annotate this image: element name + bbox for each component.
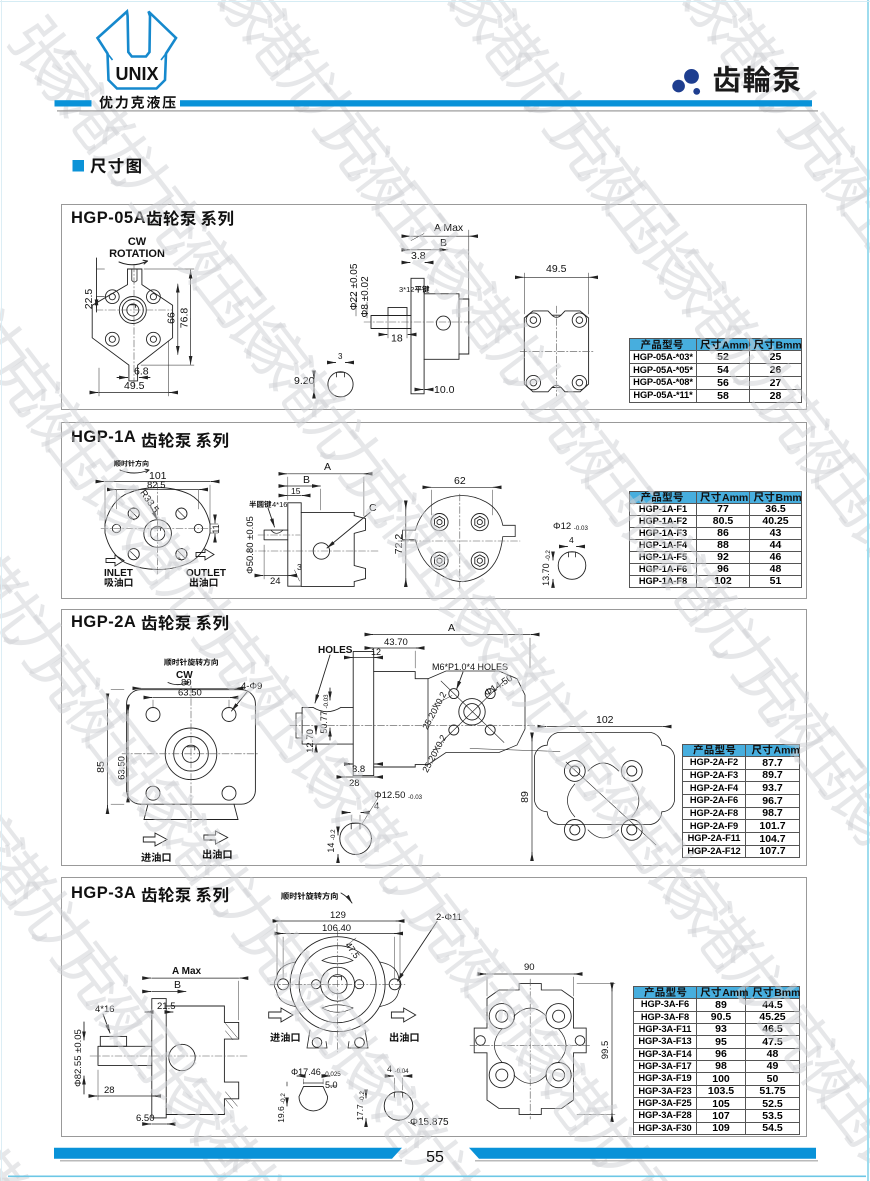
svg-text:B: B [303, 474, 310, 486]
svg-text:49.5: 49.5 [546, 263, 567, 275]
svg-text:50.77 -0.03: 50.77 -0.03 [319, 694, 330, 734]
svg-text:R33.5: R33.5 [137, 488, 161, 515]
svg-text:89: 89 [519, 791, 531, 803]
svg-text:Φ14.50: Φ14.50 [482, 673, 514, 699]
svg-text:55: 55 [426, 1149, 444, 1166]
svg-text:99.5: 99.5 [600, 1041, 611, 1060]
svg-text:17.7 -0.2: 17.7 -0.2 [355, 1091, 366, 1121]
svg-text:62: 62 [454, 475, 466, 487]
svg-text:14 -0.2: 14 -0.2 [326, 829, 337, 853]
svg-text:19.6 -0.2: 19.6 -0.2 [276, 1093, 287, 1123]
svg-text:4*16: 4*16 [95, 1004, 115, 1015]
svg-text:15: 15 [291, 486, 301, 496]
svg-text:63.50: 63.50 [117, 756, 128, 780]
svg-text:HOLES: HOLES [318, 645, 353, 656]
svg-text:Φ12 -0.03: Φ12 -0.03 [553, 521, 588, 532]
svg-text:2-Φ11: 2-Φ11 [436, 912, 462, 923]
svg-text:24: 24 [270, 576, 281, 587]
svg-text:M6*P1.0*4 HOLES: M6*P1.0*4 HOLES [432, 662, 508, 672]
svg-text:90: 90 [524, 962, 535, 973]
svg-text:5.0: 5.0 [325, 1080, 338, 1090]
svg-text:49.5: 49.5 [124, 380, 145, 392]
svg-text:76.8: 76.8 [179, 308, 191, 329]
svg-text:CW: CW [128, 236, 147, 248]
svg-text:28: 28 [349, 778, 360, 789]
svg-text:B: B [440, 237, 447, 249]
svg-text:106.40: 106.40 [322, 923, 351, 934]
svg-text:4-Φ9: 4-Φ9 [241, 681, 262, 692]
svg-text:3: 3 [338, 352, 343, 361]
svg-text:21.5: 21.5 [157, 1001, 176, 1012]
svg-text:102: 102 [596, 714, 614, 726]
svg-text:43.70: 43.70 [384, 637, 408, 648]
svg-text:13.70 -0.2: 13.70 -0.2 [541, 550, 552, 586]
svg-text:85: 85 [95, 761, 107, 773]
svg-text:22.5: 22.5 [83, 289, 95, 310]
svg-text:66: 66 [166, 312, 178, 324]
svg-text:Φ50.80 ±0.05: Φ50.80 ±0.05 [245, 516, 256, 574]
svg-text:OUTLET: OUTLET [186, 568, 226, 579]
svg-text:ROTATION: ROTATION [109, 248, 165, 260]
svg-text:63.50: 63.50 [178, 688, 202, 699]
svg-text:UNIX: UNIX [115, 64, 158, 84]
svg-text:6.8: 6.8 [134, 366, 149, 378]
svg-text:Φ22 ±0.05: Φ22 ±0.05 [349, 263, 360, 310]
svg-text:12: 12 [371, 647, 381, 657]
svg-text:3.8: 3.8 [411, 250, 426, 262]
svg-text:9.20: 9.20 [294, 375, 315, 387]
svg-text:3.8: 3.8 [352, 764, 365, 775]
svg-text:INLET: INLET [104, 568, 133, 579]
svg-text:B: B [174, 979, 181, 991]
svg-text:4: 4 [374, 801, 379, 812]
svg-text:A Max: A Max [172, 966, 202, 977]
svg-text:A Max: A Max [434, 222, 464, 234]
svg-text:Φ82.55 ±0.05: Φ82.55 ±0.05 [73, 1029, 84, 1087]
svg-text:12.70: 12.70 [305, 729, 316, 753]
svg-text:129: 129 [330, 910, 346, 921]
svg-text:4 -0.04: 4 -0.04 [387, 1064, 409, 1075]
svg-text:C: C [369, 502, 377, 514]
svg-text:25.20X0.2: 25.20X0.2 [420, 690, 448, 731]
svg-text:82.5: 82.5 [147, 480, 166, 491]
svg-text:72.2: 72.2 [393, 534, 405, 555]
svg-text:28: 28 [104, 1085, 115, 1096]
svg-text:4: 4 [569, 535, 574, 545]
svg-text:18: 18 [391, 333, 403, 345]
svg-text:A: A [448, 622, 455, 634]
svg-text:Φ17.46 -0.025: Φ17.46 -0.025 [291, 1067, 341, 1078]
svg-text:3: 3 [297, 562, 302, 572]
svg-text:Φ12.50 -0.03: Φ12.50 -0.03 [374, 790, 423, 801]
svg-text:10.0: 10.0 [434, 384, 455, 396]
svg-text:A: A [324, 461, 331, 473]
svg-text:11: 11 [211, 524, 221, 533]
svg-text:Φ8 ±0.02: Φ8 ±0.02 [360, 276, 371, 318]
